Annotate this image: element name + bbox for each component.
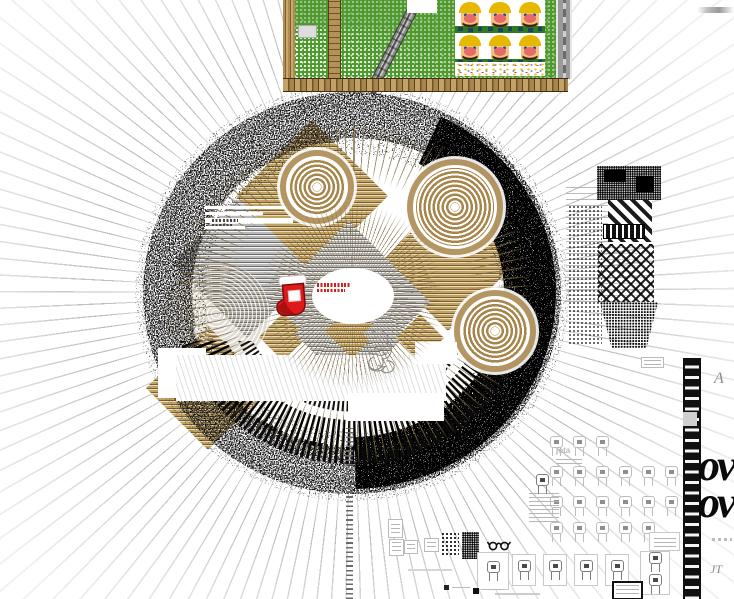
brick-column <box>328 0 341 79</box>
tiny-line <box>482 589 504 590</box>
tiny-line <box>452 587 470 588</box>
red-micro-text <box>317 283 351 287</box>
jota-label: jota <box>556 446 570 455</box>
glitch-black-chunk <box>636 176 654 192</box>
small-box <box>424 538 439 552</box>
gray-streak <box>697 7 734 13</box>
faint-line <box>408 569 452 571</box>
robot-icon <box>549 466 563 487</box>
robot-card <box>477 552 509 590</box>
robot-icon <box>572 436 586 457</box>
robot-card <box>543 554 567 586</box>
robot-icon <box>595 466 609 487</box>
robot-icon <box>641 496 655 517</box>
small-box <box>388 519 403 538</box>
robot-icon <box>595 436 609 457</box>
robot-icon <box>648 552 662 572</box>
white-block <box>348 393 444 421</box>
glasses-icon <box>487 537 511 552</box>
robot-icon <box>618 496 632 517</box>
gray-tile <box>298 25 317 38</box>
robot-icon <box>664 466 678 487</box>
glitch-art-canvas[interactable]: A ov ov JT jota <box>0 0 734 599</box>
robot-icon <box>572 496 586 517</box>
white-streak <box>205 226 245 229</box>
wario-face-sprite <box>455 0 485 33</box>
black-outline-box <box>612 581 643 599</box>
faint-line <box>495 593 540 595</box>
micro-text <box>212 224 232 226</box>
robot-icon <box>535 474 549 495</box>
robot-icon <box>648 574 662 594</box>
robot-icon <box>572 522 586 543</box>
lattice-block <box>598 244 654 302</box>
small-outline-box <box>641 357 664 368</box>
robot-card <box>640 551 670 595</box>
robot-card <box>574 554 598 586</box>
robot-icon <box>595 522 609 543</box>
micro-text <box>212 219 238 222</box>
sketch-figure <box>360 327 402 375</box>
stocking-icon <box>270 272 316 323</box>
tiny-text-card <box>649 532 680 551</box>
tiny-square <box>444 585 449 590</box>
robot-icon <box>610 560 624 581</box>
tiny-square <box>473 588 479 594</box>
glitch-sprite-row <box>455 62 545 76</box>
fine-print <box>556 456 582 464</box>
robot-card <box>512 554 536 586</box>
center-core <box>312 268 394 324</box>
target-ring <box>463 299 527 363</box>
road-strip <box>556 0 572 79</box>
fine-print <box>529 492 559 522</box>
wario-face-sprite <box>515 0 545 33</box>
white-streak <box>205 212 263 215</box>
film-strip-gap <box>683 412 697 426</box>
jt-label: JT <box>710 562 722 577</box>
red-micro-text <box>317 289 345 292</box>
brick-bar <box>283 78 568 92</box>
robot-icon <box>579 560 593 581</box>
glitch-fringe <box>568 205 602 345</box>
robot-icon <box>548 560 562 581</box>
dash-bar <box>603 224 645 239</box>
robot-icon <box>664 496 678 517</box>
robot-icon <box>517 560 531 581</box>
white-notch <box>407 0 437 13</box>
small-box <box>389 539 404 556</box>
white-streak <box>205 206 305 209</box>
robot-icon <box>595 496 609 517</box>
wario-face-sprite <box>485 0 515 33</box>
robot-icon <box>618 522 632 543</box>
glitch-bit <box>441 532 459 556</box>
small-box <box>404 540 418 554</box>
tan-column <box>283 0 295 79</box>
gray-dashes <box>712 538 732 541</box>
letter-a: A <box>714 370 724 388</box>
big-glyph-line2: ov <box>698 485 734 520</box>
robot-icon <box>486 561 500 582</box>
robot-icon <box>572 466 586 487</box>
robot-icon <box>549 522 563 543</box>
robot-icon <box>641 466 655 487</box>
robot-icon <box>618 466 632 487</box>
vertical-text-column <box>346 428 353 599</box>
glitch-black-chunk <box>604 170 626 182</box>
